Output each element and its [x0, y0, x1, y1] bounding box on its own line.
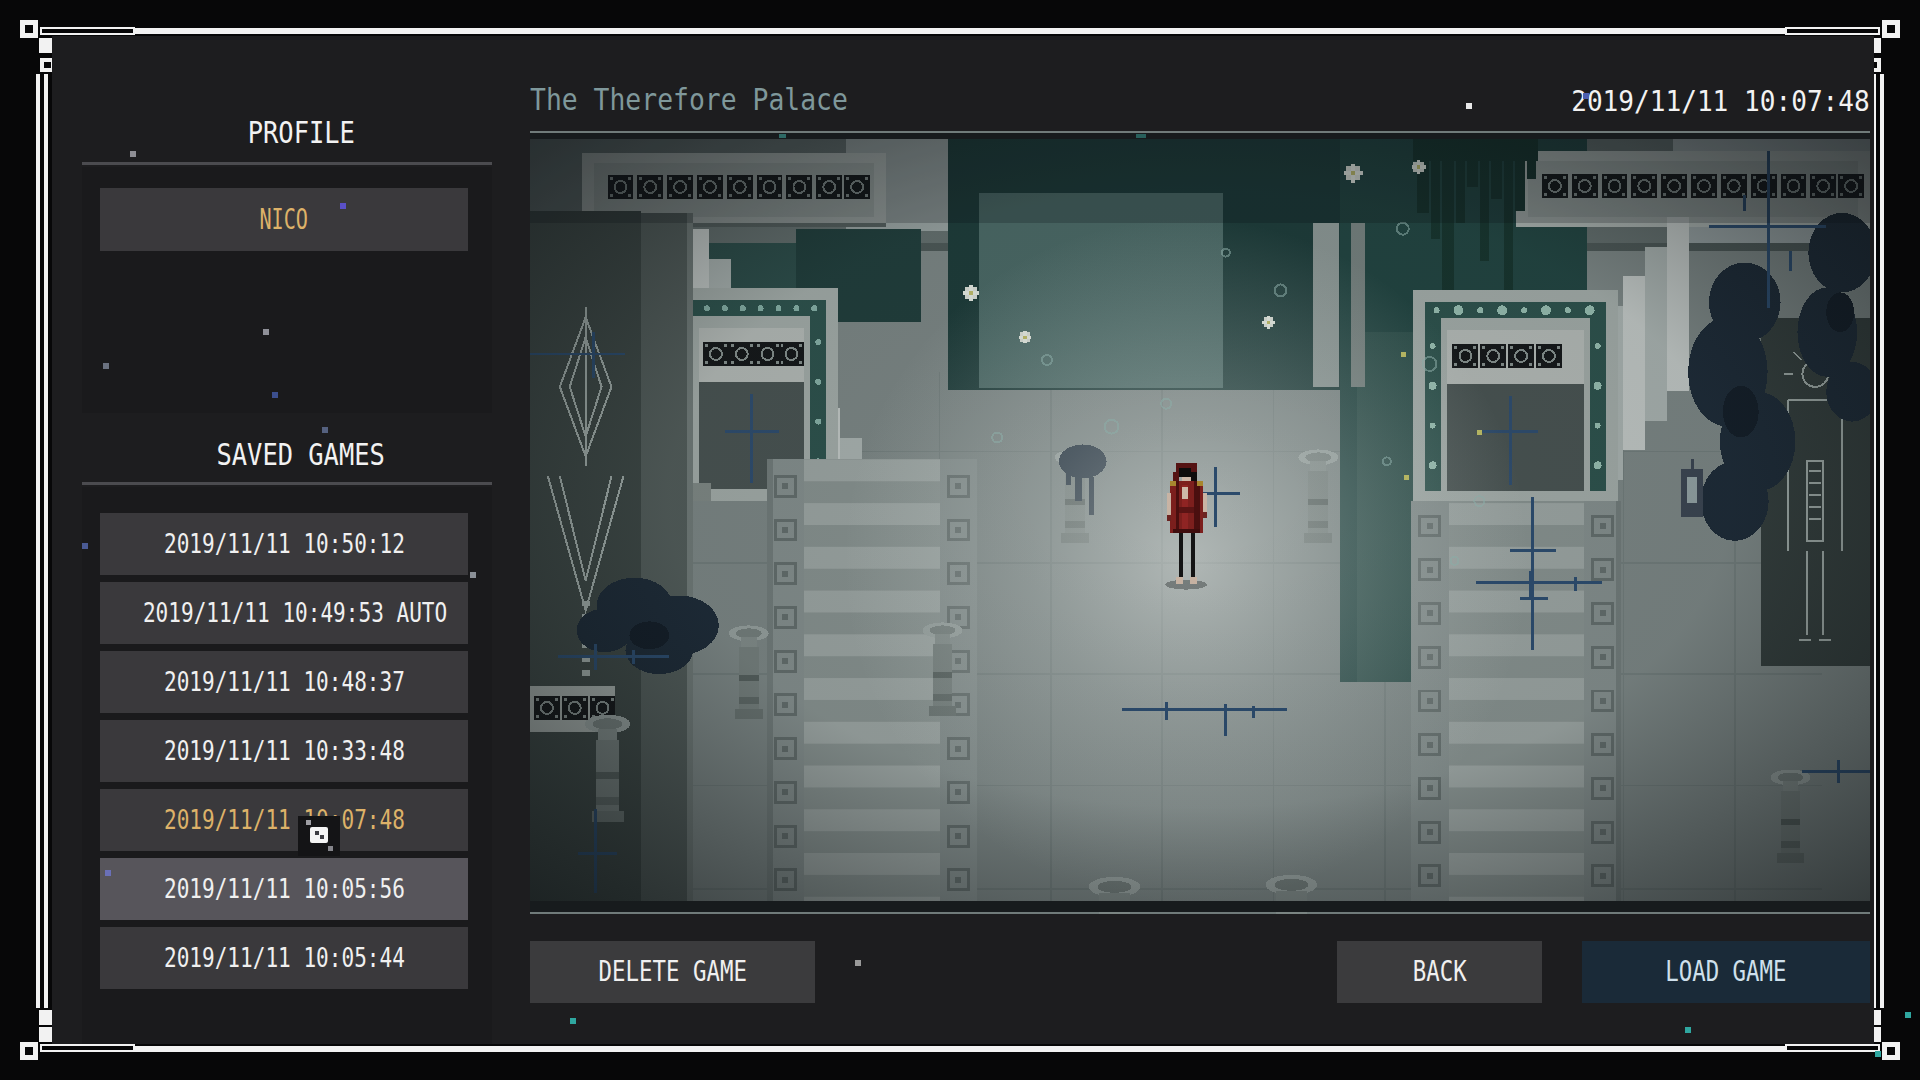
save-slot[interactable]: 2019/11/11 10:33:48 — [100, 720, 468, 782]
sparkle-icon — [103, 363, 109, 369]
save-slot-selected[interactable]: 2019/11/11 10:07:48 — [100, 789, 468, 851]
save-slot[interactable]: 2019/11/11 10:48:37 — [100, 651, 468, 713]
save-preview-image — [530, 131, 1870, 914]
cursor-icon — [298, 816, 340, 856]
sparkle-icon — [263, 329, 269, 335]
map-title: The Therefore Palace — [530, 82, 891, 117]
sparkle-icon — [1583, 93, 1589, 99]
divider — [82, 482, 492, 485]
save-slot[interactable]: 2019/11/11 10:49:53 AUTO — [100, 582, 468, 644]
sparkle-icon — [1905, 1012, 1911, 1018]
profile-box: NICO — [82, 167, 492, 413]
saved-games-box: 2019/11/11 10:50:12 2019/11/11 10:49:53 … — [82, 487, 492, 1044]
sparkle-icon — [130, 151, 136, 157]
delete-game-button[interactable]: DELETE GAME — [530, 941, 815, 1003]
back-button[interactable]: BACK — [1337, 941, 1542, 1003]
saved-games-heading: SAVED GAMES — [82, 436, 520, 472]
divider — [82, 162, 492, 165]
sparkle-icon — [1875, 1051, 1881, 1057]
load-game-screen: PROFILE NICO SAVED GAMES 2019/11/11 10:5… — [0, 0, 1920, 1080]
save-timestamp: 2019/11/11 10:07:48 — [1538, 84, 1870, 118]
sidebar: PROFILE NICO SAVED GAMES 2019/11/11 10:5… — [82, 36, 520, 1044]
sparkle-icon — [570, 1018, 576, 1024]
load-game-button[interactable]: LOAD GAME — [1582, 941, 1870, 1003]
sparkle-icon — [470, 572, 476, 578]
sparkle-icon — [322, 427, 328, 433]
sparkle-icon — [1685, 1027, 1691, 1033]
sparkle-icon — [272, 392, 278, 398]
save-slot[interactable]: 2019/11/11 10:05:44 — [100, 927, 468, 989]
sparkle-icon — [1466, 103, 1472, 109]
save-slot-hovered[interactable]: 2019/11/11 10:05:56 — [100, 858, 468, 920]
save-slot[interactable]: 2019/11/11 10:50:12 — [100, 513, 468, 575]
sparkle-icon — [340, 203, 346, 209]
profile-heading: PROFILE — [82, 114, 520, 150]
sparkle-icon — [105, 870, 111, 876]
profile-nico-button[interactable]: NICO — [100, 188, 468, 251]
sparkle-icon — [82, 543, 88, 549]
sparkle-icon — [855, 960, 861, 966]
